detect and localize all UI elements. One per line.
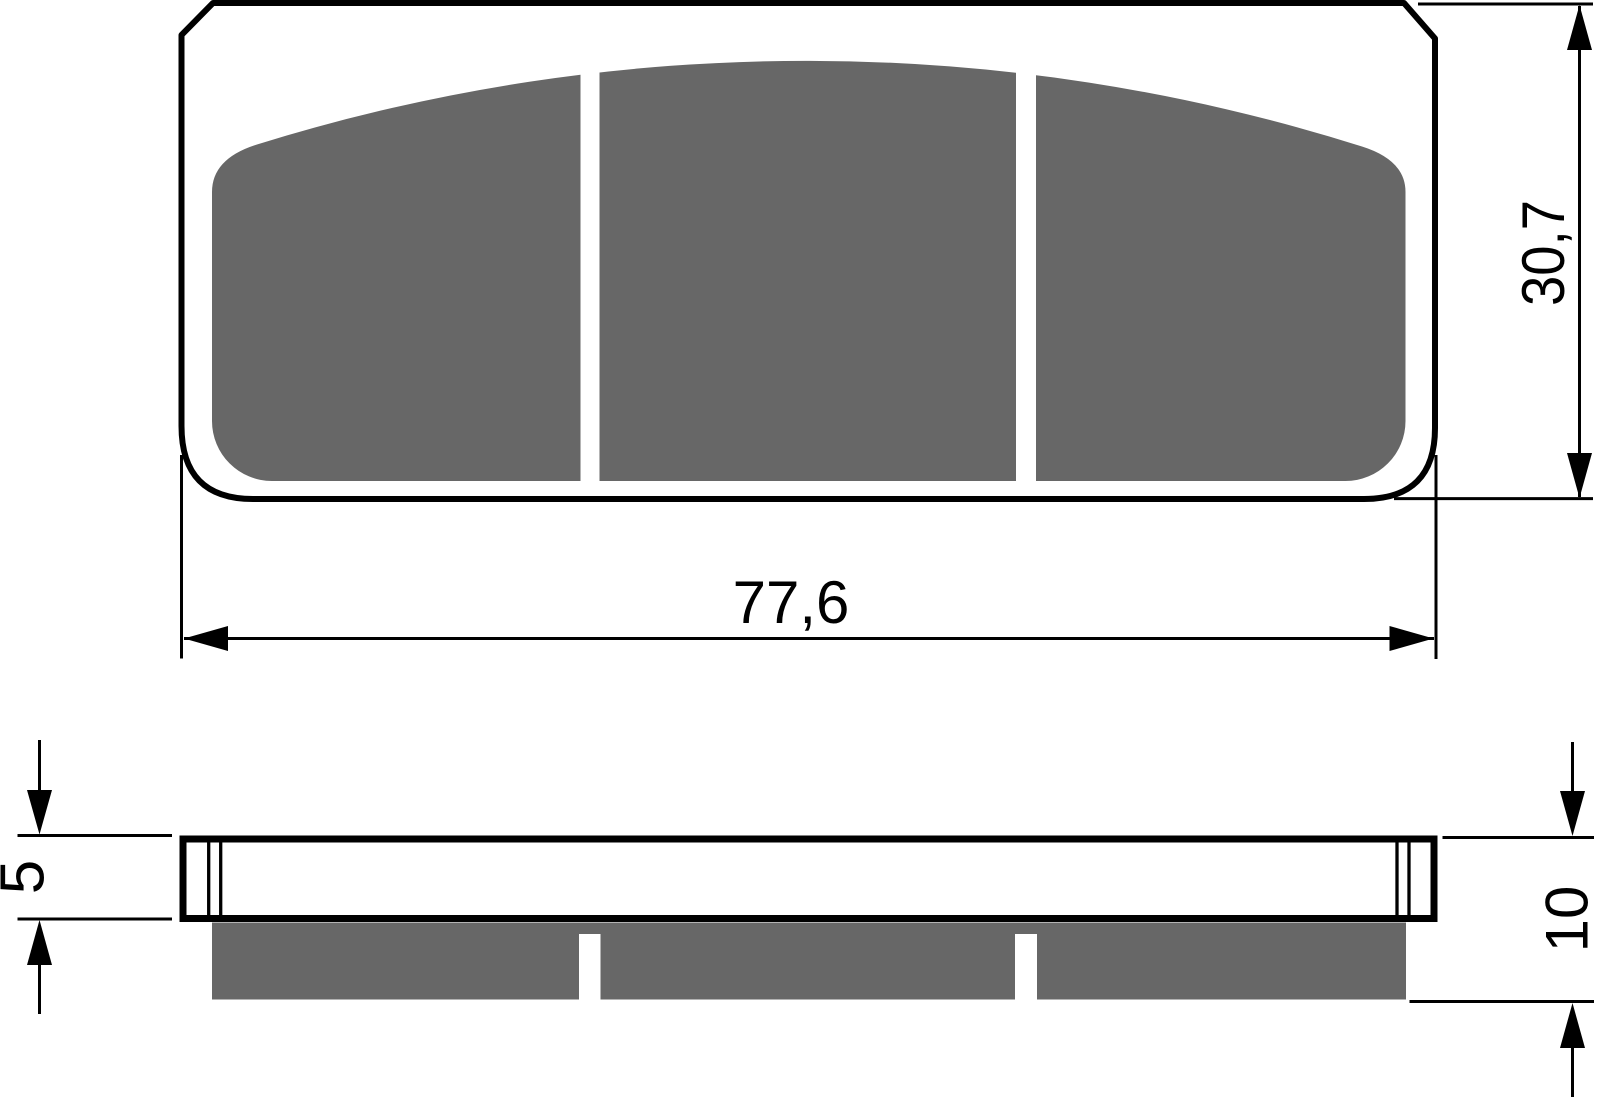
svg-text:10: 10 bbox=[1534, 886, 1600, 953]
svg-text:77,6: 77,6 bbox=[733, 569, 850, 636]
svg-text:30,7: 30,7 bbox=[1510, 200, 1577, 306]
svg-text:5: 5 bbox=[0, 860, 58, 894]
